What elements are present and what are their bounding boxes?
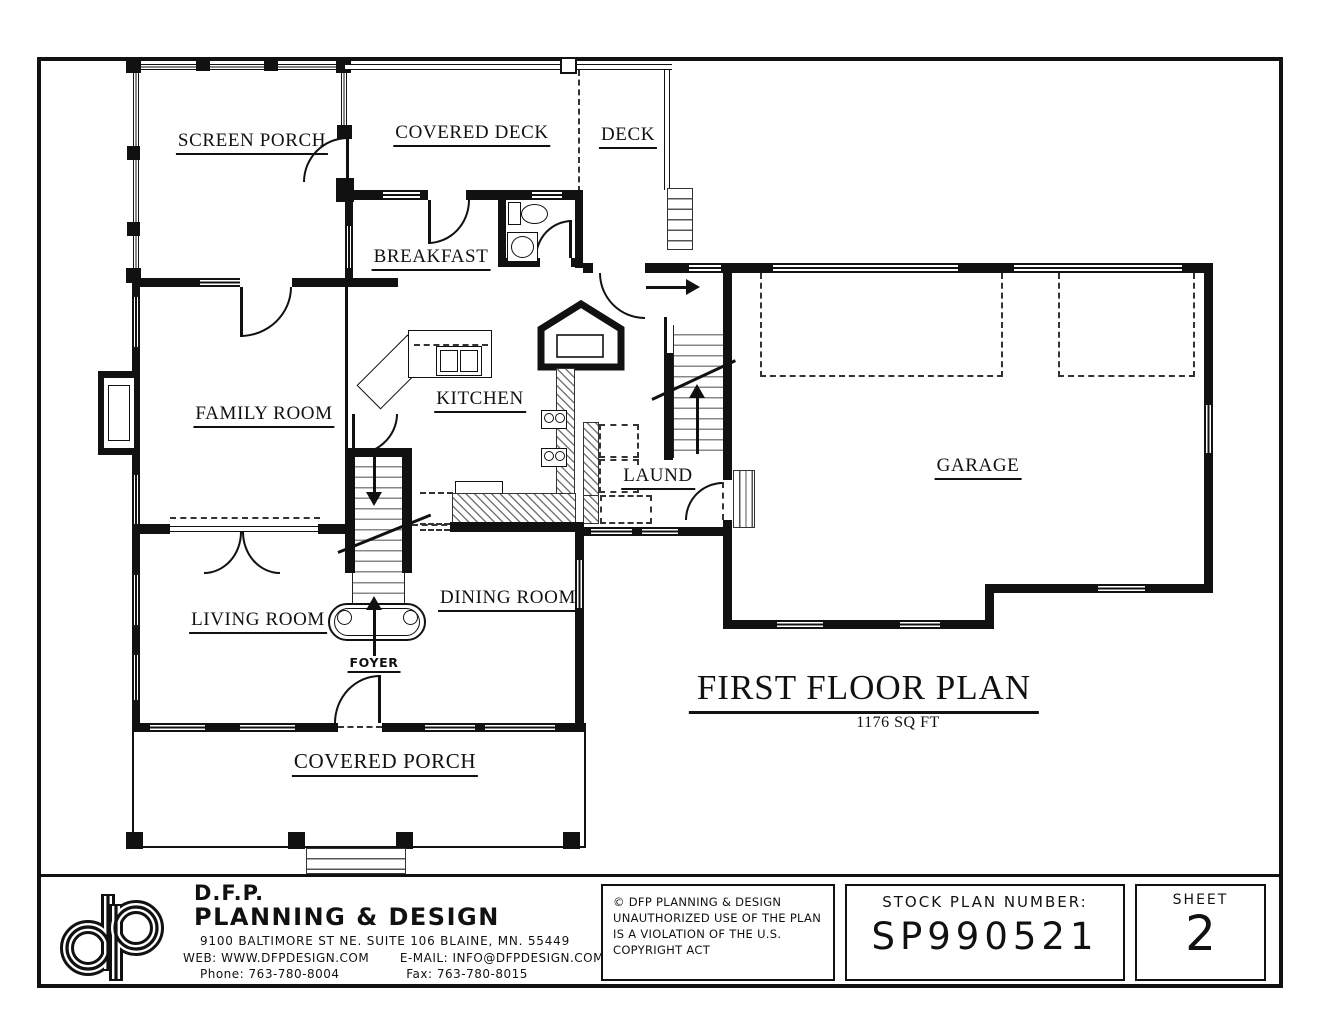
porch-steps [306, 848, 406, 874]
copyright-line: COPYRIGHT ACT [613, 943, 821, 959]
deck-steps [667, 188, 693, 250]
washer-icon [599, 424, 639, 458]
porch-post [264, 58, 278, 71]
porch-post [126, 58, 141, 73]
door-leaf [240, 287, 243, 337]
phone-value: 763-780-8004 [249, 967, 340, 981]
up-arrow-icon [689, 384, 705, 398]
stair-wall [664, 353, 673, 460]
wall [132, 723, 150, 732]
wall [1204, 273, 1213, 405]
wall [958, 263, 1014, 273]
deck-post [560, 57, 577, 74]
room-label-family-room: FAMILY ROOM [193, 403, 334, 428]
wall [450, 522, 576, 532]
window [900, 620, 940, 629]
wall [645, 263, 689, 273]
room-label-foyer: FOYER [348, 655, 401, 673]
laundry-counter-hatched [583, 495, 599, 524]
copyright-line: © DFP PLANNING & DESIGN [613, 895, 821, 911]
window [132, 575, 140, 625]
door-arc [535, 220, 572, 258]
header-dashed [170, 517, 320, 519]
storage-dashed-area [1058, 273, 1195, 377]
deck-edge [664, 70, 670, 190]
copyright-line: IS A VIOLATION OF THE U.S. [613, 927, 821, 943]
wall [1182, 263, 1213, 273]
door-arc [428, 200, 470, 244]
wall [555, 723, 586, 732]
room-label-kitchen: KITCHEN [434, 388, 526, 413]
room-label-screen-porch: SCREEN PORCH [176, 130, 328, 155]
railing [664, 317, 667, 355]
porch-post [127, 146, 140, 160]
porch-post [396, 832, 413, 849]
wall [132, 524, 170, 534]
web-value: WWW.DFPDESIGN.COM [221, 951, 369, 965]
window [132, 655, 140, 700]
wall [318, 524, 347, 534]
window [383, 190, 420, 200]
laundry-counter-dashed [600, 495, 652, 524]
floor-plan: SCREEN PORCH COVERED DECK DECK BREAKFAST… [0, 0, 1320, 880]
newel-post [403, 610, 418, 625]
kitchen-sink [460, 350, 478, 372]
room-label-covered-deck: COVERED DECK [393, 122, 550, 147]
railing [345, 287, 348, 455]
room-label-dining-room: DINING ROOM [438, 587, 578, 612]
fax-value: 763-780-8015 [437, 967, 528, 981]
stock-plan-number: SP990521 [847, 915, 1123, 958]
plan-area: 1176 SQ FT [856, 714, 940, 732]
window [200, 278, 240, 287]
plan-title: FIRST FLOOR PLAN [689, 668, 1039, 714]
wall [1145, 584, 1213, 593]
up-arrow [373, 610, 376, 656]
roof-line-dashed [578, 70, 580, 192]
cooktop-burner [544, 413, 554, 423]
wall [721, 263, 773, 273]
french-door-arc [204, 532, 242, 574]
newel-post [337, 610, 352, 625]
window [532, 190, 562, 200]
fireplace-firebox [108, 385, 130, 441]
room-label-garage: GARAGE [935, 455, 1022, 480]
company-address: 9100 BALTIMORE ST NE. SUITE 106 BLAINE, … [200, 934, 570, 948]
email-label: E-MAIL: [400, 951, 448, 965]
screen-wall [133, 70, 139, 278]
wall [723, 520, 732, 629]
room-label-living-room: LIVING ROOM [189, 609, 327, 634]
kitchen-sink [440, 350, 458, 372]
porch-post [288, 832, 305, 849]
window [345, 226, 353, 268]
window [642, 527, 678, 536]
title-block-divider [41, 874, 1279, 877]
window [1014, 263, 1182, 273]
door-leaf [428, 200, 431, 244]
room-label-deck: DECK [599, 124, 657, 149]
laundry-counter-hatched [583, 422, 599, 496]
wall [575, 190, 583, 268]
wall [940, 620, 994, 629]
cooktop-burner [555, 413, 565, 423]
down-arrow-icon [366, 492, 382, 506]
up-arrow-icon [366, 596, 382, 610]
wall [583, 263, 593, 273]
sheet-number: 2 [1137, 906, 1264, 962]
email-value: INFO@DFPDESIGN.COM [452, 951, 604, 965]
window [777, 620, 823, 629]
stock-plan-label: STOCK PLAN NUMBER: [847, 893, 1123, 911]
door-leaf [722, 482, 724, 520]
wall [475, 723, 485, 732]
wall [583, 527, 591, 536]
cooktop-burner [555, 451, 565, 461]
window [150, 723, 205, 732]
wall [1204, 453, 1213, 593]
cased-opening [420, 523, 450, 525]
wall [571, 258, 583, 267]
door-leaf [346, 137, 349, 182]
counter-dashed-edge [420, 492, 453, 494]
company-phone-fax: Phone: 763-780-8004 Fax: 763-780-8015 [200, 967, 528, 981]
garage-landing-steps [733, 470, 755, 528]
down-arrow [373, 448, 376, 492]
chimney [533, 299, 629, 371]
wall [575, 522, 584, 723]
wall [723, 273, 732, 480]
copyright-line: UNAUTHORIZED USE OF THE PLAN [613, 911, 821, 927]
room-label-laundry: LAUND [621, 465, 695, 490]
stair-wall [402, 448, 412, 573]
window [132, 475, 140, 525]
room-label-breakfast: BREAKFAST [372, 246, 491, 271]
window [1098, 584, 1145, 593]
copyright-text: © DFP PLANNING & DESIGN UNAUTHORIZED USE… [613, 895, 821, 958]
wall [985, 584, 1098, 593]
company-web-email: WEB: WWW.DFPDESIGN.COM E-MAIL: INFO@DFPD… [183, 951, 604, 965]
company-short: D.F.P. [194, 881, 264, 905]
dfp-logo [52, 888, 180, 983]
wall [420, 190, 428, 200]
door-sill-dashed [338, 726, 382, 728]
drawing-sheet: SCREEN PORCH COVERED DECK DECK BREAKFAST… [0, 0, 1320, 1020]
door-leaf [378, 675, 381, 723]
window [485, 723, 555, 732]
window [773, 263, 958, 273]
porch-post [127, 222, 140, 236]
wall [678, 527, 723, 536]
wall [382, 723, 425, 732]
door-arc [240, 287, 292, 337]
window [689, 263, 723, 273]
window [591, 527, 632, 536]
up-arrow [696, 398, 699, 454]
cooktop-burner [544, 451, 554, 461]
window [240, 723, 295, 732]
cased-opening [420, 529, 450, 531]
room-label-covered-porch: COVERED PORCH [292, 749, 478, 777]
wall [295, 723, 338, 732]
wall [205, 723, 240, 732]
door-leaf [569, 220, 572, 258]
stairs-down [355, 457, 402, 573]
porch-post [126, 832, 143, 849]
french-door-arc [242, 532, 280, 574]
stock-plan-box: STOCK PLAN NUMBER: SP990521 [845, 884, 1125, 981]
toilet-icon [521, 204, 548, 224]
window [425, 723, 475, 732]
wall [498, 198, 506, 260]
entry-arrow [646, 286, 686, 289]
kitchen-counter-hatched [452, 493, 576, 523]
storage-dashed-area [760, 273, 1003, 377]
wall [632, 527, 642, 536]
entry-arrow-icon [686, 279, 700, 295]
phone-label: Phone: [200, 967, 244, 981]
stair-wall [345, 448, 355, 573]
wall [823, 620, 900, 629]
window [132, 297, 140, 347]
front-door-arc [334, 675, 380, 723]
porch-post [196, 58, 210, 71]
deck-edge [345, 64, 672, 70]
web-label: WEB: [183, 951, 217, 965]
sink-icon [511, 236, 534, 258]
fax-label: Fax: [406, 967, 432, 981]
window [1204, 405, 1213, 453]
sheet-box: SHEET 2 [1135, 884, 1266, 981]
screen-wall [133, 64, 345, 70]
wall [132, 278, 200, 287]
wall [292, 278, 398, 287]
porch-post [563, 832, 580, 849]
kitchen-range-wall [556, 368, 575, 496]
company-name: PLANNING & DESIGN [194, 903, 500, 931]
toilet-icon [508, 202, 521, 225]
